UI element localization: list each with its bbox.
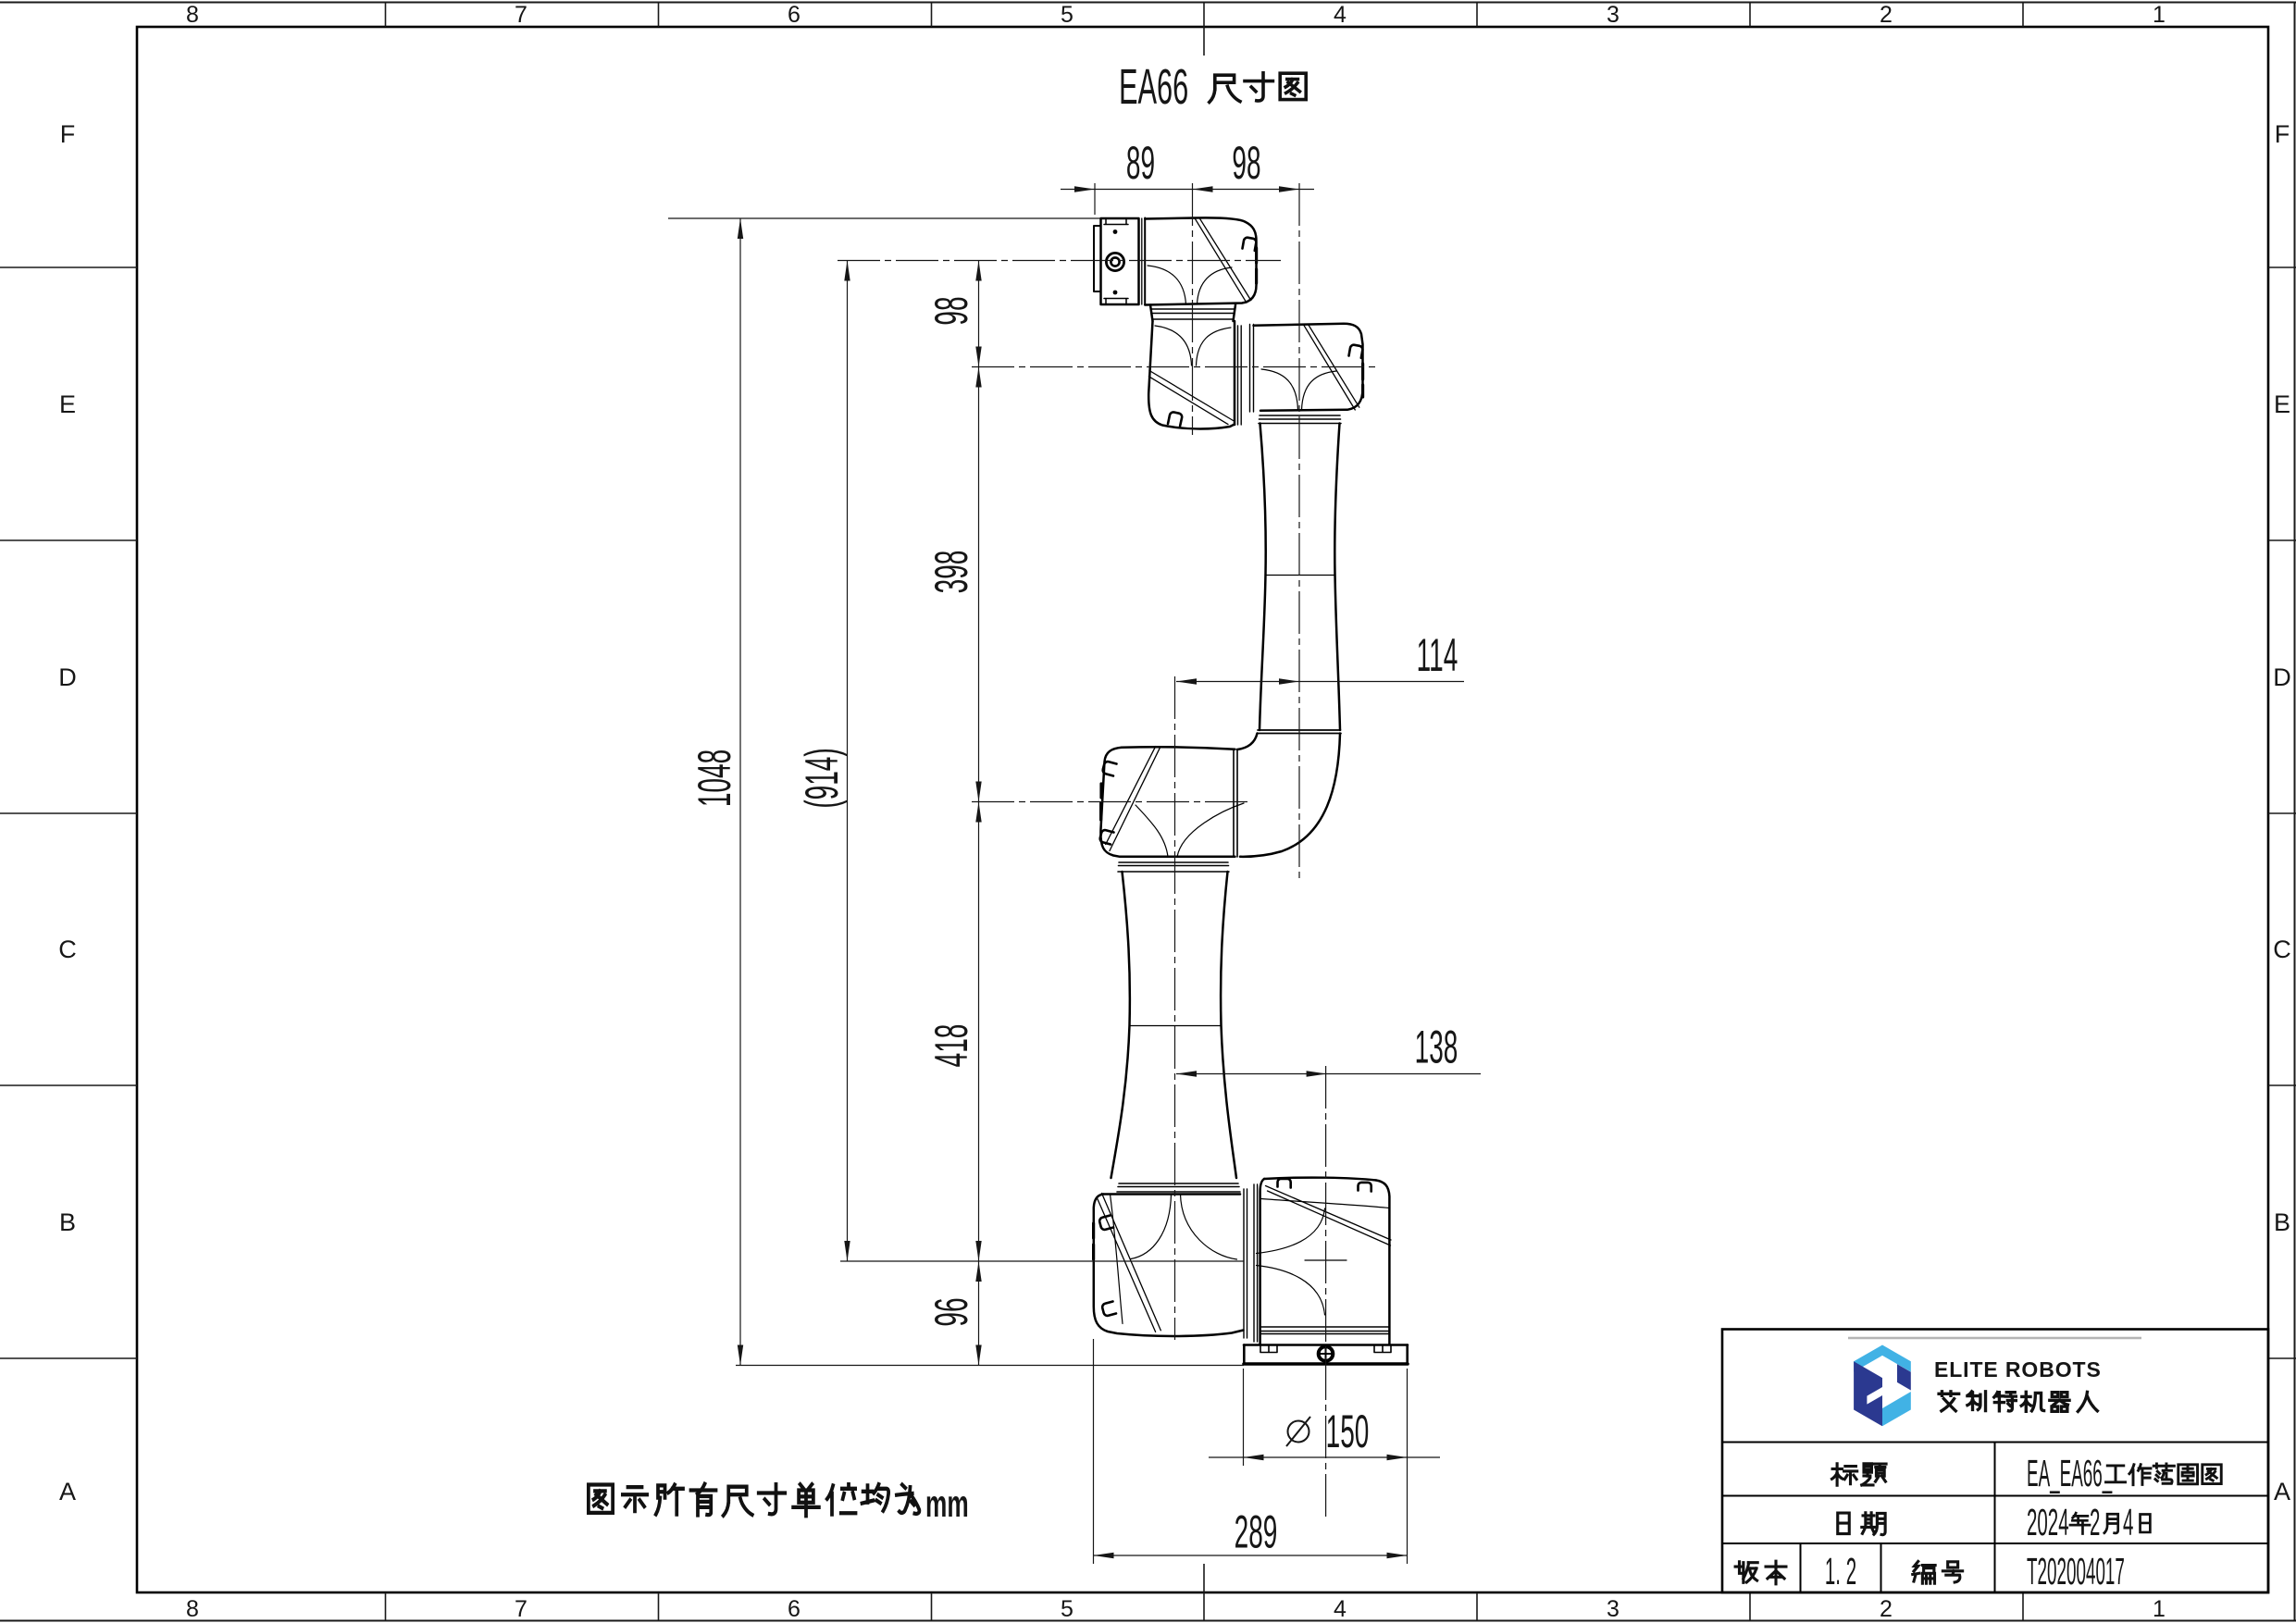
- svg-text:138: 138: [1415, 1021, 1458, 1073]
- svg-text:B: B: [2274, 1208, 2290, 1236]
- svg-text:A: A: [59, 1478, 76, 1505]
- svg-text:C: C: [58, 935, 77, 963]
- svg-text:98: 98: [925, 296, 977, 325]
- svg-text:F: F: [2275, 120, 2290, 148]
- svg-text:6: 6: [788, 2, 800, 28]
- svg-text:1048: 1048: [688, 750, 740, 807]
- svg-text:D: D: [2273, 663, 2291, 691]
- svg-text:4: 4: [1334, 2, 1347, 28]
- svg-text:3: 3: [1607, 2, 1620, 28]
- svg-text:EA_EA66_: EA_EA66_: [2027, 1452, 2113, 1494]
- svg-text:98: 98: [1232, 136, 1260, 189]
- svg-text:(914): (914): [795, 748, 848, 808]
- svg-text:5: 5: [1061, 1596, 1074, 1622]
- svg-text:4: 4: [2123, 1501, 2133, 1543]
- svg-text:6: 6: [788, 1596, 800, 1622]
- svg-text:418: 418: [925, 1024, 977, 1068]
- svg-text:7: 7: [515, 2, 527, 28]
- svg-text:8: 8: [186, 2, 199, 28]
- svg-text:C: C: [2273, 935, 2291, 963]
- svg-text:114: 114: [1417, 628, 1458, 681]
- svg-text:96: 96: [925, 1297, 977, 1326]
- svg-text:8: 8: [186, 1596, 199, 1622]
- svg-text:150: 150: [1326, 1405, 1370, 1457]
- svg-text:B: B: [59, 1208, 76, 1236]
- svg-text:2024: 2024: [2027, 1501, 2069, 1543]
- svg-text:2: 2: [1880, 1596, 1893, 1622]
- svg-text:89: 89: [1126, 136, 1155, 189]
- svg-text:3: 3: [1607, 1596, 1620, 1622]
- svg-text:2: 2: [2090, 1501, 2100, 1543]
- svg-text:EA66: EA66: [1119, 59, 1188, 115]
- svg-text:289: 289: [1235, 1505, 1278, 1558]
- svg-text:A: A: [2274, 1478, 2290, 1505]
- svg-text:1. 2: 1. 2: [1825, 1550, 1856, 1592]
- svg-text:E: E: [59, 390, 76, 418]
- svg-text:E: E: [2274, 390, 2290, 418]
- svg-text:4: 4: [1334, 1596, 1347, 1622]
- svg-text:D: D: [58, 663, 77, 691]
- svg-text:mm: mm: [925, 1483, 969, 1525]
- svg-text:F: F: [60, 120, 76, 148]
- svg-text:ELITE ROBOTS: ELITE ROBOTS: [1934, 1357, 2102, 1381]
- svg-text:2: 2: [1880, 2, 1893, 28]
- svg-text:5: 5: [1061, 2, 1074, 28]
- svg-text:1: 1: [2153, 1596, 2166, 1622]
- svg-text:1: 1: [2153, 2, 2166, 28]
- svg-text:T202004017: T202004017: [2027, 1550, 2125, 1592]
- svg-text:7: 7: [515, 1596, 527, 1622]
- svg-text:398: 398: [925, 551, 977, 594]
